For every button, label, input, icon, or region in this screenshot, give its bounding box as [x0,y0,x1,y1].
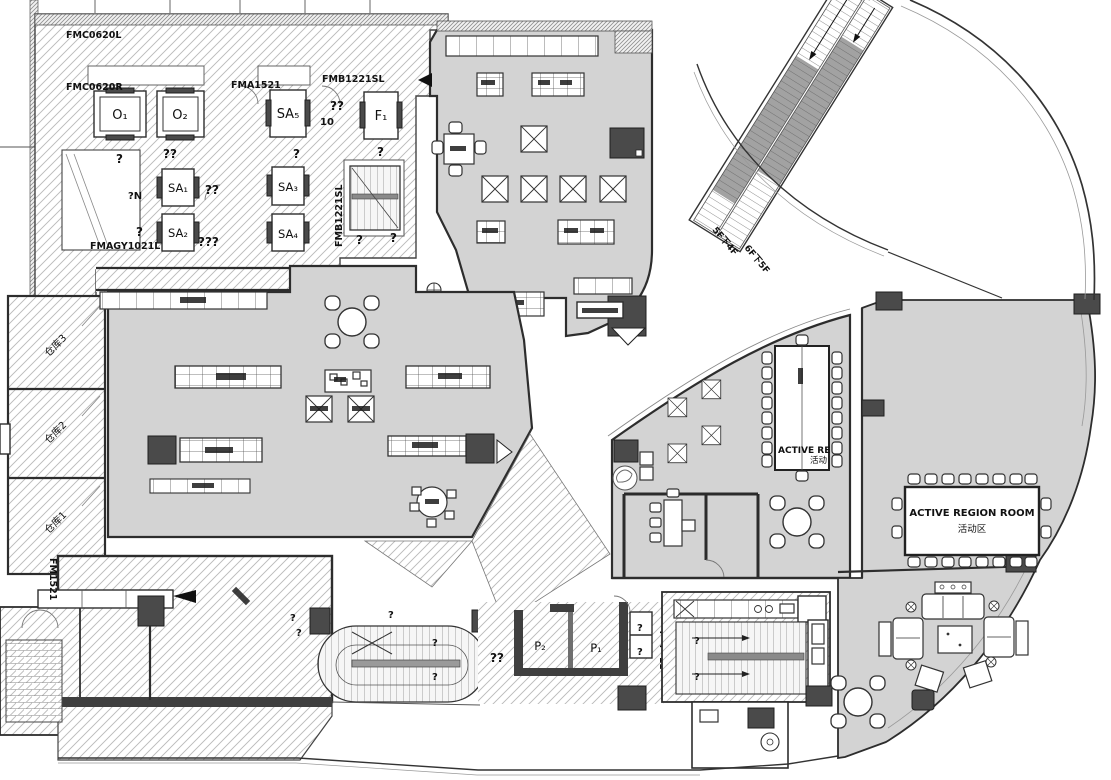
mark-q-stair3: ? [432,672,438,683]
column-block [618,686,646,710]
small-utility-room [692,702,788,768]
mark-q3: ? [293,147,300,161]
room-label-sa5: SA₅ [277,107,300,122]
mark-qq1: ?? [163,147,177,161]
side-table [879,622,891,656]
craft-table: ACTIVE RE 活动 [762,335,842,481]
floor-plan-canvas: 1500 O₁ O₂ SA₅ F₁ [0,0,1111,780]
column-block [862,400,884,416]
mark-qn: ?N [128,191,142,202]
elevator-shaft-sa3: SA₃ [267,167,309,205]
mark-qq-p: ?? [490,651,504,665]
mark-q-room1: ? [290,613,296,624]
display-table [521,176,547,202]
display-table [560,176,586,202]
display-table [482,176,508,202]
room-label-sa4: SA₄ [278,227,298,241]
stair-left [6,640,62,722]
code-fma1521: FMA1521 [231,80,281,91]
cabinet-dark [148,436,176,464]
parts-table [325,370,371,392]
mark-qq-f1: ?? [330,99,344,113]
elevator-shaft-sa5: SA₅ [266,90,310,137]
mark-q6: ? [390,231,397,245]
kitchen-stair-room: ? ? [662,592,832,706]
code-fmb1221sl-side: FMB1221SL [334,184,345,247]
column-block [1074,294,1100,314]
active-region-table: ACTIVE REGION ROOM 活动区 [892,474,1051,567]
mark-q-kstair2: ? [694,672,700,683]
mark-10: 10 [320,117,334,128]
code-fm1521: FM1521 [47,558,58,600]
display-table [600,176,626,202]
room-label-o2: O₂ [172,108,187,123]
column-block [876,292,902,310]
parking-rooms: ?? P₂ P₁ ? ? ? ? 11 [478,596,667,710]
storage-rooms: 仓库3 仓库2 仓库1 [0,296,105,574]
elevator-shaft-o2: O₂ [157,88,204,140]
core-stair [344,160,404,236]
display-table [702,426,721,445]
mark-q-stair2: ? [432,638,438,649]
mark-q-kstair1: ? [694,636,700,647]
cabinet-dark [614,440,638,462]
room-label-sa1: SA₁ [168,181,188,195]
elevator-shaft-f1: F₁ [360,92,402,139]
mark-q5: ? [356,233,363,247]
counter [574,278,632,294]
display-table [668,444,687,463]
mark-q-stair1: ? [296,628,302,639]
code-fmc0620l: FMC0620L [66,30,121,41]
code-fmc0620r: FMC0620R [66,82,123,93]
sofa [922,594,984,619]
left-showroom [100,266,532,537]
active-room-subtitle: 活动区 [958,523,987,535]
display-table [702,380,721,399]
elevator-shaft-sa1: SA₁ [157,169,199,206]
room-label-sa3: SA₃ [278,180,298,194]
mark-qqq: ??? [198,235,219,249]
wall-cabinet-row [446,36,598,56]
mark-q-cell2: ? [637,647,643,658]
stool-dark [912,690,934,710]
service-box [798,596,826,622]
wall-band [58,697,332,707]
room-label-o1: O₁ [112,108,127,123]
armchair [893,618,923,659]
code-fmb1221sl: FMB1221SL [322,74,385,85]
elevator-shaft-o1: O₁ [94,88,146,140]
cabinet-dark [466,434,494,463]
active-room-title: ACTIVE REGION ROOM [909,508,1034,519]
elevator-shaft-sa4: SA₄ [267,214,309,251]
room-label-sa2: SA₂ [168,226,188,240]
code-fmagy1021l: FMAGY1021L [90,241,160,252]
display-table [668,398,687,417]
mark-q-cell1: ? [637,623,643,634]
room-label-f1: F₁ [375,109,388,124]
elevator-core: O₁ O₂ SA₅ F₁ SA₁ SA₂ SA₃ [35,14,448,298]
mark-q1: ? [116,152,123,166]
column-block [138,596,164,626]
craft-table-title: ACTIVE RE [778,446,830,456]
column-block [806,686,832,706]
mark-q-room2: ? [388,610,394,621]
floor-plan-drawing: 1500 O₁ O₂ SA₅ F₁ [0,0,1111,780]
elevator-shaft-sa2: SA₂ [157,214,199,251]
display-table [521,126,547,152]
illegible-table-label [798,368,803,384]
mark-q2: ? [136,225,143,239]
room-label-p2: P₂ [534,639,546,653]
side-table [1016,621,1028,655]
plant [613,466,637,490]
mark-qq2: ?? [205,183,219,197]
craft-table-subtitle: 活动 [810,455,828,466]
mark-q4: ? [377,145,384,159]
room-label-p1: P₁ [590,641,602,655]
coffee-table [938,626,972,653]
